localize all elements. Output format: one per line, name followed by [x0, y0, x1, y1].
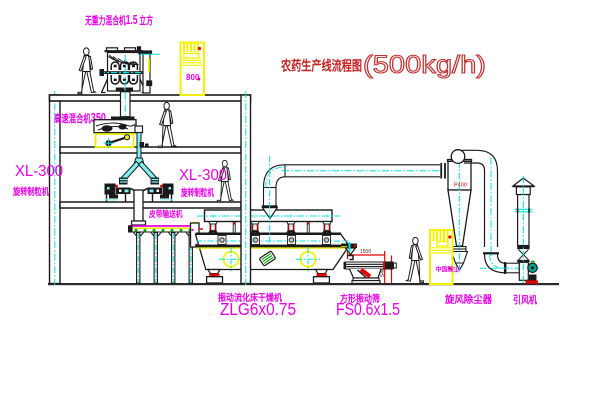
- svg-text:XL-300: XL-300: [179, 167, 227, 184]
- svg-text:旋转制粒机: 旋转制粒机: [180, 187, 214, 199]
- svg-text:XL-300: XL-300: [15, 163, 63, 180]
- svg-text:(500kg/h): (500kg/h): [363, 51, 486, 79]
- svg-text:中国除尘: 中国除尘: [436, 266, 460, 274]
- svg-text:引风机: 引风机: [513, 294, 537, 307]
- svg-text:1500: 1500: [360, 249, 371, 255]
- svg-text:旋转制粒机: 旋转制粒机: [12, 186, 49, 198]
- svg-text:皮带输送机: 皮带输送机: [148, 209, 183, 219]
- svg-text:旋风除尘器: 旋风除尘器: [444, 293, 493, 306]
- svg-text:ZLG6x0.75: ZLG6x0.75: [220, 299, 296, 319]
- svg-text:P400: P400: [454, 183, 467, 189]
- svg-text:农药生产线流程图: 农药生产线流程图: [280, 58, 362, 74]
- svg-text:800: 800: [186, 73, 200, 82]
- svg-text:FS0.6x1.5: FS0.6x1.5: [336, 299, 400, 319]
- svg-text:无重力混合机1.5 立方: 无重力混合机1.5 立方: [84, 12, 153, 27]
